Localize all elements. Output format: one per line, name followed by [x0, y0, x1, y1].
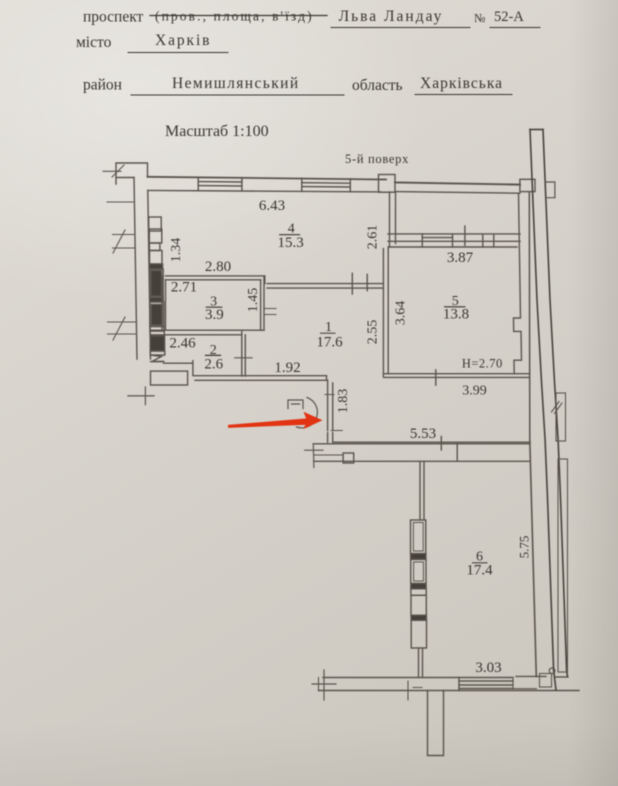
svg-text:2.6: 2.6 — [204, 357, 223, 373]
svg-text:5.75: 5.75 — [517, 536, 532, 559]
svg-text:15.3: 15.3 — [277, 235, 303, 251]
svg-text:область: область — [352, 77, 403, 94]
svg-text:3.99: 3.99 — [462, 384, 487, 399]
svg-text:проспект: проспект — [83, 9, 144, 26]
svg-text:1.34: 1.34 — [169, 238, 184, 263]
svg-text:17.4: 17.4 — [466, 563, 493, 579]
svg-text:6.43: 6.43 — [259, 198, 285, 214]
svg-text:Немишлянський: Немишлянський — [172, 75, 300, 92]
svg-text:район: район — [83, 77, 122, 94]
svg-text:місто: місто — [76, 34, 112, 51]
svg-text:3.03: 3.03 — [475, 660, 501, 676]
svg-text:13.8: 13.8 — [443, 307, 469, 323]
svg-text:5.53: 5.53 — [410, 426, 436, 442]
svg-text:2.55: 2.55 — [366, 320, 381, 345]
svg-text:H=2.70: H=2.70 — [462, 356, 503, 370]
svg-text:2.61: 2.61 — [366, 225, 381, 250]
svg-text:Масштаб 1:100: Масштаб 1:100 — [165, 123, 269, 140]
svg-text:3.87: 3.87 — [447, 250, 474, 266]
svg-text:3.9: 3.9 — [205, 307, 224, 323]
svg-text:1.45: 1.45 — [246, 288, 261, 313]
svg-text:2.46: 2.46 — [169, 336, 196, 352]
svg-text:Харківська: Харківська — [420, 75, 503, 92]
svg-text:1.83: 1.83 — [336, 389, 351, 414]
svg-text:17.6: 17.6 — [316, 335, 343, 351]
svg-text:1.92: 1.92 — [274, 360, 300, 376]
svg-text:Льва Ландау: Льва Ландау — [339, 8, 444, 25]
svg-text:3.64: 3.64 — [394, 301, 409, 326]
svg-text:52-А: 52-А — [494, 9, 524, 25]
svg-text:Харків: Харків — [155, 32, 211, 49]
svg-text:5-й поверх: 5-й поверх — [345, 152, 409, 166]
svg-text:2.80: 2.80 — [205, 259, 231, 275]
svg-text:№: № — [474, 11, 485, 25]
svg-text:2.71: 2.71 — [171, 280, 197, 296]
